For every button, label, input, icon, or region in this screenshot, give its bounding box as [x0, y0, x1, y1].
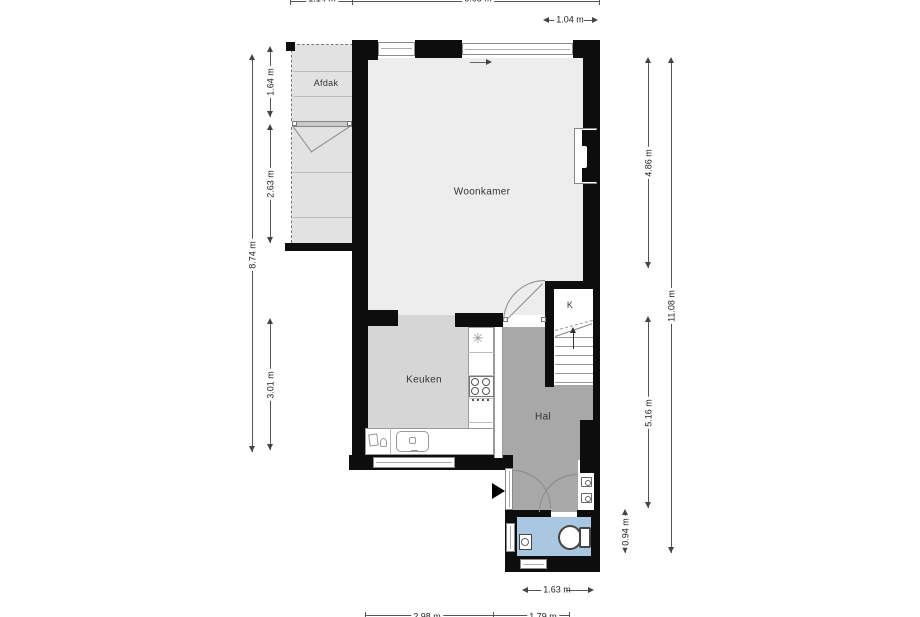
dim-arrow	[267, 124, 273, 130]
dim-label-kitchen: 3.01 m	[266, 369, 277, 401]
stairs-treads	[555, 337, 593, 385]
dim-label-right-top: 4.86 m	[644, 147, 655, 179]
cooktop-burner	[471, 378, 479, 386]
floor-hall-upper	[503, 327, 546, 387]
entrance-arrow-icon	[492, 483, 505, 499]
dim-arrow	[645, 262, 651, 268]
wall-kitchen-stub-west	[352, 310, 398, 326]
room-label-living: Woonkamer	[454, 187, 510, 198]
dim-arrow	[588, 587, 594, 593]
stairs-up-arrow-stem	[573, 333, 574, 349]
window-toilet-south	[520, 559, 547, 569]
dim-label-storage: 2.63 m	[266, 168, 277, 200]
wall-vestibule-west-upper	[505, 455, 513, 468]
toilet-tank	[579, 527, 591, 548]
dim-arrow	[622, 547, 628, 553]
dim-arrow	[267, 444, 273, 450]
sink-drain	[409, 437, 416, 444]
appliance-icon	[368, 433, 379, 446]
dim-tick	[569, 612, 570, 617]
dim-label-right-outer: 11.08 m	[667, 288, 678, 324]
canopy-slat-line	[293, 71, 352, 72]
dim-tick	[493, 612, 494, 617]
dim-arrow	[645, 57, 651, 63]
chimney-notch	[578, 146, 587, 168]
wall-storage-bottom	[285, 243, 368, 251]
storage-door-jamb	[292, 121, 297, 126]
window-toilet-west	[506, 523, 515, 552]
dim-label-top-main: 6.08 m	[462, 0, 494, 5]
storage-slat-line	[293, 217, 352, 218]
dim-arrow	[267, 237, 273, 243]
floor-hall-lower	[503, 420, 580, 460]
dim-arrow	[645, 316, 651, 322]
dim-arrow	[249, 54, 255, 60]
wall-toilet-top-right	[577, 510, 600, 517]
dim-arrow	[267, 318, 273, 324]
dim-arrow	[668, 57, 674, 63]
canopy-slat-line	[293, 96, 352, 97]
appliance-icon	[380, 438, 387, 447]
slider-arrow-icon	[486, 59, 492, 65]
room-label-closet: K	[567, 300, 573, 310]
dim-label-canopy: 1.64 m	[266, 66, 277, 98]
wall-east-mid	[593, 283, 600, 423]
room-label-kitchen: Keuken	[406, 375, 442, 386]
counter-divider	[468, 422, 494, 423]
canopy-open-edge-left	[291, 45, 292, 121]
front-door-frame	[505, 468, 513, 510]
room-label-hall: Hal	[535, 412, 551, 423]
wall-east-step	[580, 420, 600, 473]
dim-label-bottom-left: 2.98 m	[411, 612, 443, 617]
dim-arrow	[249, 446, 255, 452]
dim-label-top-left: 1.14 m	[306, 0, 338, 5]
dim-arrow	[267, 111, 273, 117]
floor-plan-canvas: ✳ Woonkamer Keuken Hal K Afdak 8.74 m 1.…	[0, 0, 920, 617]
slider-arrow-line	[470, 62, 486, 63]
sink-tap	[411, 450, 418, 452]
dim-arrow	[267, 46, 273, 52]
storage-slat-line	[293, 172, 352, 173]
dim-tick	[599, 0, 600, 5]
dim-label-top-right: 1.04 m	[554, 15, 586, 26]
cooktop-burner	[482, 378, 490, 386]
room-label-canopy: Afdak	[314, 78, 339, 88]
counter-divider-vertical	[390, 428, 391, 455]
dim-tick	[352, 0, 353, 5]
dim-arrow	[592, 17, 598, 23]
storage-door-sill	[292, 121, 352, 127]
counter-divider	[468, 352, 494, 353]
window-top-slider	[462, 43, 573, 55]
dim-line-top-right	[584, 20, 592, 21]
wall-canopy-corner	[286, 42, 295, 51]
dim-line-wc-width	[566, 590, 588, 591]
ventilation-icon: ✳	[472, 330, 484, 347]
dim-arrow	[645, 502, 651, 508]
canopy-open-edge-top	[292, 44, 353, 45]
cooktop-burner	[482, 387, 490, 395]
dim-tick	[290, 0, 291, 5]
window-kitchen-south	[373, 457, 455, 468]
window-top-small	[378, 42, 415, 56]
meter-box-icon	[581, 477, 592, 487]
wall-vestibule-west-lower	[505, 510, 513, 517]
dim-label-bottom-right: 1.79 m	[527, 612, 559, 617]
wall-west	[352, 40, 368, 470]
dim-arrow	[668, 547, 674, 553]
dim-tick	[365, 612, 366, 617]
wall-meter-closet-east	[594, 473, 600, 515]
stairs-up-arrow-icon	[570, 327, 576, 333]
wall-kitchen-stub-east	[455, 313, 503, 327]
washbasin-bowl	[521, 538, 529, 546]
cooktop-knobs	[472, 399, 474, 401]
dim-label-wc-height: 0.94 m	[621, 516, 632, 548]
partition-kitchen-hall	[494, 327, 503, 458]
meter-box-icon	[581, 493, 592, 503]
dim-arrow	[622, 509, 628, 515]
wall-closet-stair-west	[545, 281, 554, 387]
storage-open-edge-left	[291, 127, 292, 243]
dim-label-left-outer: 8.74 m	[248, 239, 259, 271]
wall-top-middle	[415, 40, 462, 58]
dim-label-right-bottom: 5.16 m	[644, 397, 655, 429]
cooktop-burner	[471, 387, 479, 395]
